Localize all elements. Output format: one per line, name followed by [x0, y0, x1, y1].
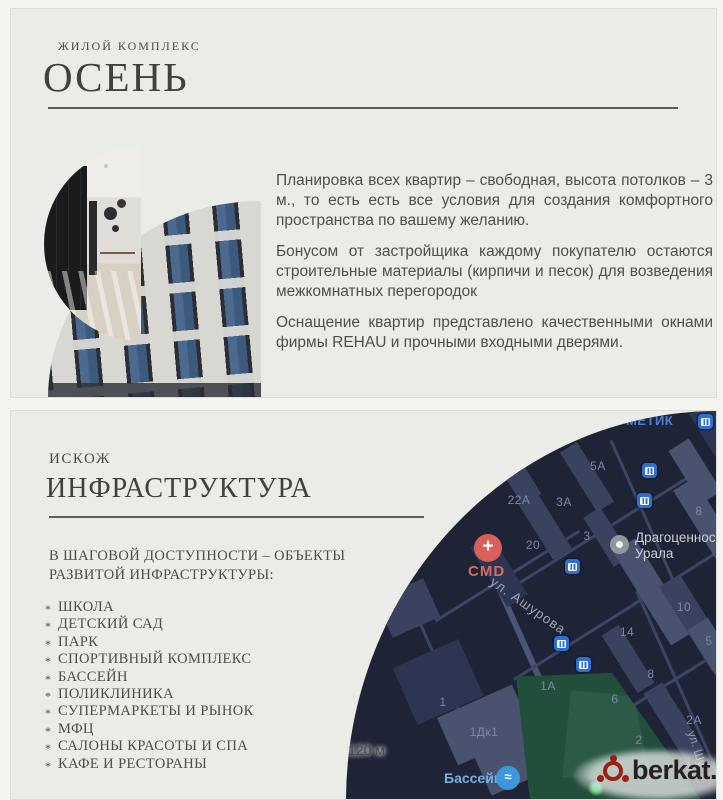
- interior-hallway-photo: [44, 147, 141, 341]
- jewelry-poi-label: Драгоценности Урала: [635, 530, 717, 562]
- tram-stop-icon: [554, 636, 569, 651]
- pool-poi-icon: ≈: [496, 766, 520, 790]
- amenities-list: ШКОЛА ДЕТСКИЙ САД ПАРК СПОРТИВНЫЙ КОМПЛЕ…: [45, 599, 254, 773]
- list-item: ШКОЛА: [45, 599, 254, 616]
- jewelry-poi-line1: Драгоценности: [635, 530, 717, 546]
- map-scale-label: 120 м: [348, 742, 385, 758]
- list-item: МФЦ: [45, 721, 254, 738]
- console-table: [100, 252, 135, 254]
- list-item: ДЕТСКИЙ САД: [45, 616, 254, 633]
- wall-decor-circle: [104, 207, 117, 220]
- title-rule: [49, 516, 424, 518]
- intro-line1: В ШАГОВОЙ ДОСТУПНОСТИ – ОБЪЕКТЫ: [49, 547, 345, 566]
- list-item: КАФЕ И РЕСТОРАНЫ: [45, 756, 254, 773]
- street-name-ashurova: ул. Ашурова: [487, 574, 568, 637]
- map-building-number: 3: [583, 529, 590, 543]
- ceiling-light: [83, 159, 87, 163]
- list-item: ПАРК: [45, 634, 254, 651]
- map-building-number: 20: [526, 538, 540, 552]
- page: ЖИЛОЙ КОМПЛЕКС ОСЕНЬ Планировка всех ква…: [0, 0, 723, 800]
- marble-floor: [44, 271, 141, 341]
- hallway-door: [89, 201, 98, 275]
- slide-osen: ЖИЛОЙ КОМПЛЕКС ОСЕНЬ Планировка всех ква…: [10, 8, 717, 398]
- tram-stop-icon: [642, 463, 657, 478]
- list-item: СПОРТИВНЫЙ КОМПЛЕКС: [45, 651, 254, 668]
- list-item: САЛОНЫ КРАСОТЫ И СПА: [45, 738, 254, 755]
- pool-poi-label: Бассейн: [444, 770, 502, 786]
- wall-decor-circle: [112, 225, 119, 232]
- map-building-number: 22А: [508, 493, 531, 507]
- map-building-number: 1Дк1: [470, 725, 499, 739]
- map-building-number: 2: [635, 733, 642, 747]
- slide-infrastructure: 5А 22А 3А 20 3 8 10 14 5 8 6 2А 2 1 1А 1…: [10, 410, 717, 800]
- tram-stop-icon: [565, 559, 580, 574]
- ceiling-light: [104, 164, 108, 168]
- map-building-number: 8: [647, 667, 654, 681]
- complex-eyebrow: ЖИЛОЙ КОМПЛЕКС: [58, 39, 201, 54]
- paragraph-bonus: Бонусом от застройщика каждому покупател…: [276, 242, 713, 302]
- shop-poi-icon: [698, 414, 713, 429]
- map-building: [376, 578, 441, 638]
- map-building-number: 1А: [540, 679, 556, 693]
- neighborhood-map: 5А 22А 3А 20 3 8 10 14 5 8 6 2А 2 1 1А 1…: [346, 411, 717, 800]
- map-building-number: 10: [677, 600, 691, 614]
- map-building-number: 5А: [590, 459, 606, 473]
- facade-ground-floor: [48, 383, 261, 398]
- map-building-number: 3А: [556, 495, 572, 509]
- district-eyebrow: ИСКОЖ: [49, 451, 111, 468]
- list-item: СУПЕРМАРКЕТЫ И РЫНОК: [45, 703, 254, 720]
- map-building-number: 14: [620, 625, 634, 639]
- list-item: БАССЕЙН: [45, 669, 254, 686]
- intro-text: В ШАГОВОЙ ДОСТУПНОСТИ – ОБЪЕКТЫ РАЗВИТОЙ…: [49, 547, 345, 585]
- berkat-logo-icon: [598, 756, 628, 786]
- map-building-number: 1: [439, 695, 446, 709]
- cmd-clinic-icon: +: [474, 534, 502, 562]
- paragraph-equipment: Оснащение квартир представлено качествен…: [276, 313, 713, 353]
- berkat-watermark: berkat.: [598, 755, 717, 786]
- intro-line2: РАЗВИТОЙ ИНФРАСТРУКТУРЫ:: [49, 566, 345, 585]
- paragraph-planning: Планировка всех квартир – свободная, выс…: [276, 171, 713, 231]
- partial-poi-label: МЕТИК: [626, 413, 673, 428]
- description-text: Планировка всех квартир – свободная, выс…: [276, 171, 713, 364]
- title-rule: [48, 107, 678, 109]
- wall-decor-circle: [117, 199, 126, 208]
- jewelry-poi-line2: Урала: [635, 546, 717, 562]
- berkat-watermark-text: berkat.: [632, 755, 717, 786]
- tram-stop-icon: [576, 657, 591, 672]
- complex-title: ОСЕНЬ: [43, 53, 189, 101]
- list-item: ПОЛИКЛИНИКА: [45, 686, 254, 703]
- map-building-number: 5: [705, 634, 712, 648]
- infrastructure-title: ИНФРАСТРУКТУРА: [46, 473, 312, 505]
- map-building-number: 6: [611, 692, 618, 706]
- map-building-number: 8: [695, 504, 702, 518]
- tram-stop-icon: [637, 493, 652, 508]
- map-building-number: 2А: [686, 713, 702, 727]
- jewelry-poi-icon: [610, 535, 629, 554]
